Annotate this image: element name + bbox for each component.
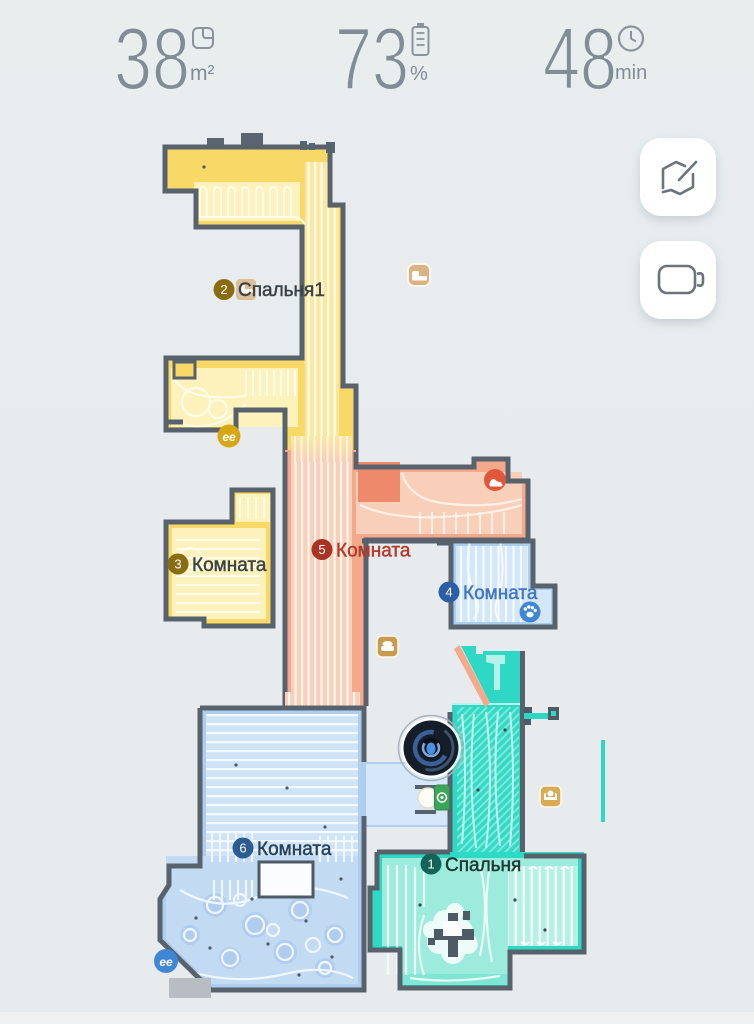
svg-text:ee: ee: [159, 955, 173, 969]
svg-text:6: 6: [239, 841, 246, 856]
svg-text:2: 2: [220, 282, 227, 297]
svg-text:Комната: Комната: [257, 839, 332, 860]
svg-text:Комната: Комната: [336, 541, 411, 562]
svg-text:4: 4: [445, 585, 452, 600]
svg-text:Спальня: Спальня: [445, 855, 521, 876]
svg-text:Комната: Комната: [192, 555, 267, 576]
svg-text:5: 5: [318, 542, 325, 557]
svg-text:%: %: [410, 63, 428, 85]
svg-text:3: 3: [174, 557, 181, 572]
svg-text:1: 1: [427, 857, 434, 872]
svg-text:m²: m²: [190, 62, 215, 85]
svg-text:ee: ee: [222, 430, 236, 444]
svg-text:Комната: Комната: [463, 583, 538, 604]
svg-text:48: 48: [543, 9, 617, 108]
svg-text:73: 73: [335, 9, 409, 108]
svg-text:min: min: [615, 62, 647, 84]
svg-text:Спальня1: Спальня1: [238, 280, 325, 301]
svg-text:38: 38: [114, 9, 190, 108]
